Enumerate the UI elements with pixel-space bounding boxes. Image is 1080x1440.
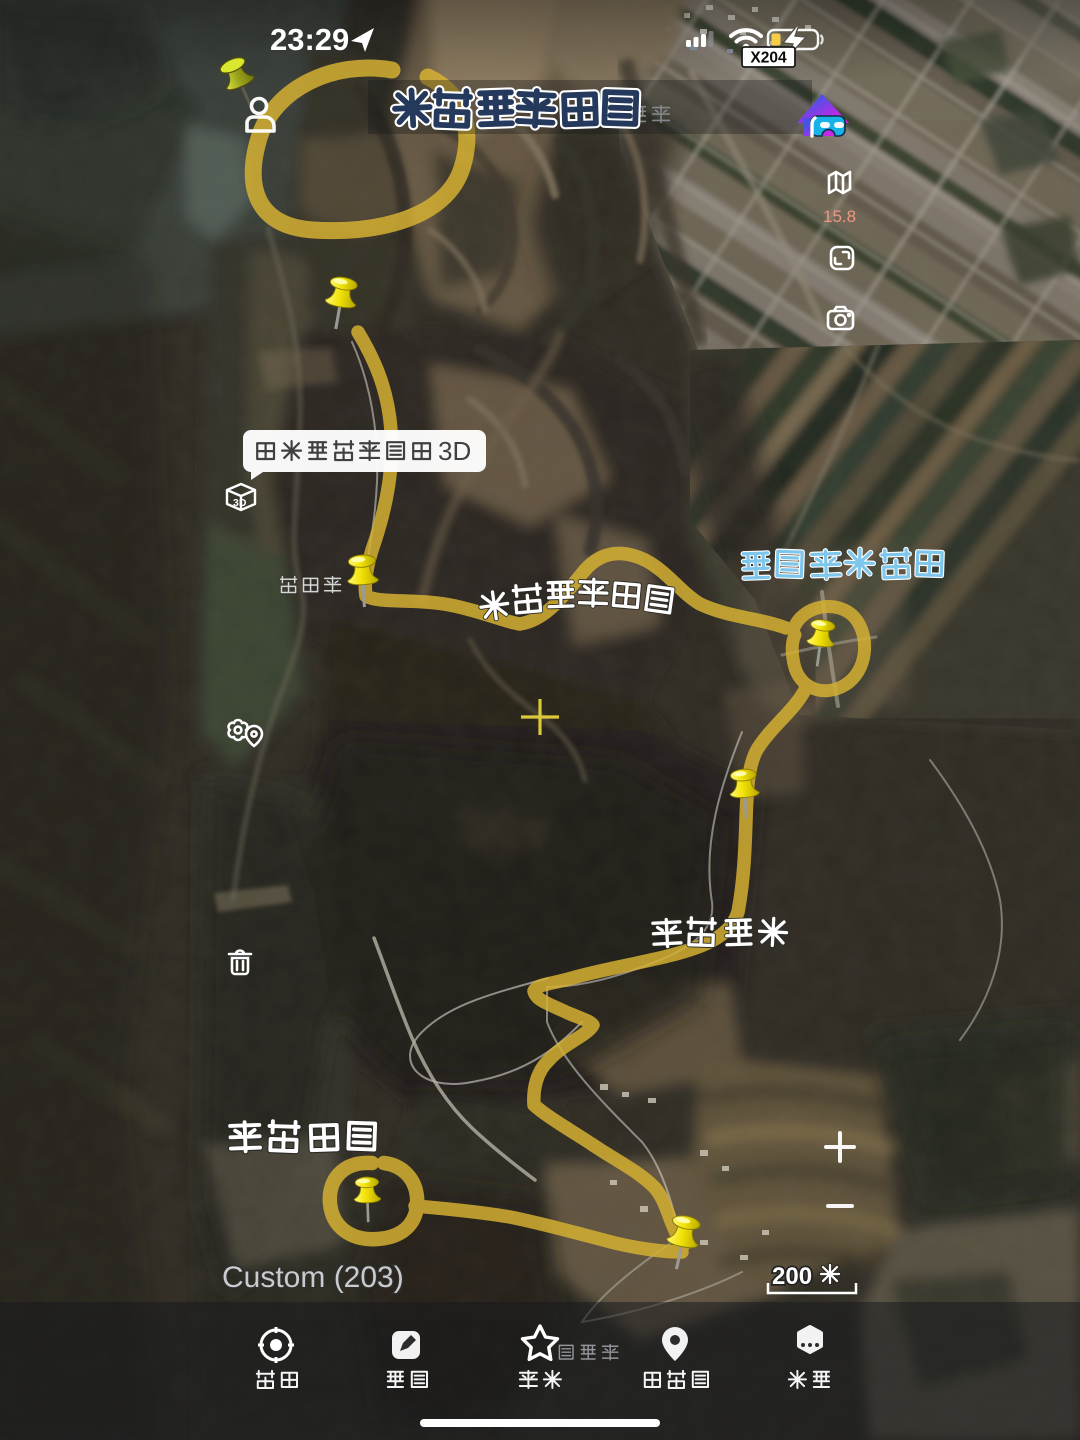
svg-text:X204: X204 [750,50,787,67]
svg-text:15.8: 15.8 [823,207,856,226]
svg-text:3D: 3D [438,436,471,466]
svg-text:200: 200 [772,1263,812,1290]
svg-text:Custom (203): Custom (203) [222,1261,404,1294]
svg-text:23:29: 23:29 [270,22,349,57]
svg-text:3D: 3D [233,497,247,509]
